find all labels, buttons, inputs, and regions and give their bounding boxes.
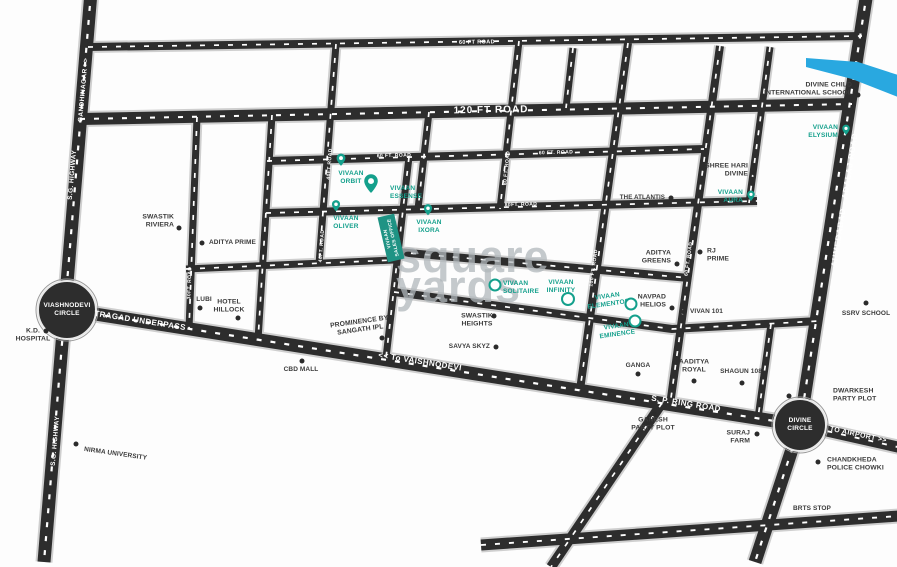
shagun-108: SHAGUN 108	[720, 368, 762, 376]
vivaan-ixora: VIVAANIXORA	[416, 219, 441, 235]
swastik-riviera-dot	[177, 226, 182, 231]
ganesh-party-plot-dot	[652, 412, 657, 417]
brts-stop: BRTS STOP	[793, 505, 831, 513]
vivaan-aura-pin-icon	[747, 190, 756, 201]
road-name-label: 60 FT ROAD	[459, 39, 495, 47]
hotel-hillock: HOTELHILLOCK	[214, 299, 245, 316]
suraj-farm: SURAJFARM	[726, 430, 750, 447]
swastik-heights-dot	[492, 314, 497, 319]
lubi: LUBI	[196, 296, 212, 304]
rj-prime: RJPRIME	[707, 248, 729, 265]
hotel-hillock-dot	[236, 316, 241, 321]
chandkheda-police-chowki: CHANDKHEDAPOLICE CHOWKI	[827, 457, 884, 474]
ssrv-school: SSRV SCHOOL	[842, 310, 890, 318]
vivaan-elementos-ring-marker-icon	[625, 298, 638, 311]
road-name-label: 30FT. ROAD	[186, 267, 193, 300]
vivaan-oliver: VIVAANOLIVER	[333, 215, 358, 231]
divine-child-international-school-dot	[856, 93, 861, 98]
vivaan-ixora-pin-icon	[423, 204, 432, 216]
aaditya-royal-dot	[692, 379, 697, 384]
vivaan-oliver-pin-icon	[331, 200, 340, 212]
divine-child-international-school: DIVINE CHILDINTERNATIONAL SCHOOL	[764, 82, 852, 99]
ganesh-party-plot: GANESHPARTY PLOT	[631, 417, 674, 434]
location-map: square yards VIVAAN SALES OFFICE GANDHIN…	[0, 0, 897, 567]
suraj-farm-dot	[755, 432, 760, 437]
prominence-by-sangath-ipl-dot	[380, 336, 385, 341]
vivaan-essense: VIVAANESSENSE	[390, 185, 422, 201]
the-atlantis: THE ATLANTIS	[620, 194, 665, 202]
dwarkesh-party-plot: DWARKESHPARTY PLOT	[833, 388, 876, 405]
savya-skyz-dot	[494, 345, 499, 350]
divine-circle-label: DIVINECIRCLE	[787, 417, 812, 433]
road-name-label: 120 FT ROAD	[453, 104, 528, 118]
vivaan-elysium-pin-icon	[842, 124, 851, 135]
vivan-101: VIVAN 101	[690, 308, 723, 316]
navpad-helios-dot	[670, 306, 675, 311]
vivaan-solitaire: VIVAANSOLITAIRE	[503, 280, 539, 296]
cbd-mall-dot	[300, 359, 305, 364]
aditya-prime-dot	[200, 241, 205, 246]
swastik-riviera: SWASTIKRIVIERA	[142, 214, 174, 231]
nirma-university-dot	[74, 442, 79, 447]
vivaan-eminence-ring-marker-icon	[629, 315, 642, 328]
ganga: GANGA	[626, 362, 651, 370]
aditya-greens-dot	[675, 262, 680, 267]
vivaan-elysium: VIVAANELYSIUM	[808, 124, 838, 140]
aditya-prime: ADITYA PRIME	[209, 239, 256, 247]
road-v-shree-right	[749, 47, 770, 203]
road-name-label: 80FT. ROAD	[505, 201, 538, 208]
ganga-dot	[636, 372, 641, 377]
vivaan-solitaire-ring-marker-icon	[489, 279, 502, 292]
aaditya-royal: AADITYAROYAL	[679, 359, 709, 376]
vivaan-essense-pin-icon	[363, 174, 379, 194]
lubi-dot	[198, 306, 203, 311]
road-name-label: 60 FT. ROAD	[539, 149, 574, 156]
shagun-108-dot	[740, 381, 745, 386]
road-name-label: 60 FT. ROAD	[377, 152, 412, 159]
chandkheda-police-chowki-dot	[816, 460, 821, 465]
ssrv-school-dot	[864, 301, 869, 306]
rj-prime-dot	[698, 250, 703, 255]
shree-hari-divine-dot	[752, 171, 757, 176]
kd-hospital-dot	[44, 329, 49, 334]
aditya-greens: ADITYAGREENS	[642, 250, 671, 267]
savya-skyz: SAVYA SKYZ	[449, 343, 490, 351]
shree-hari-divine: SHREE HARIDIVINE	[705, 163, 748, 180]
viashnodevi-circle-label: VIASHNODEVICIRCLE	[44, 302, 91, 318]
dwarkesh-party-plot-dot	[787, 394, 792, 399]
navpad-helios: NAVPADHELIOS	[638, 294, 666, 311]
swastik-heights: SWASTIKHEIGHTS	[461, 313, 493, 330]
the-atlantis-dot	[669, 196, 674, 201]
vivaan-orbit: VIVAANORBIT	[338, 170, 363, 186]
vivan-101-dot	[682, 310, 687, 315]
cbd-mall: CBD MALL	[284, 366, 319, 374]
vivaan-orbit-pin-icon	[336, 153, 346, 166]
vivaan-infinity-ring-marker-icon	[561, 292, 575, 306]
vivaan-aura: VIVAANAURA	[718, 189, 743, 205]
